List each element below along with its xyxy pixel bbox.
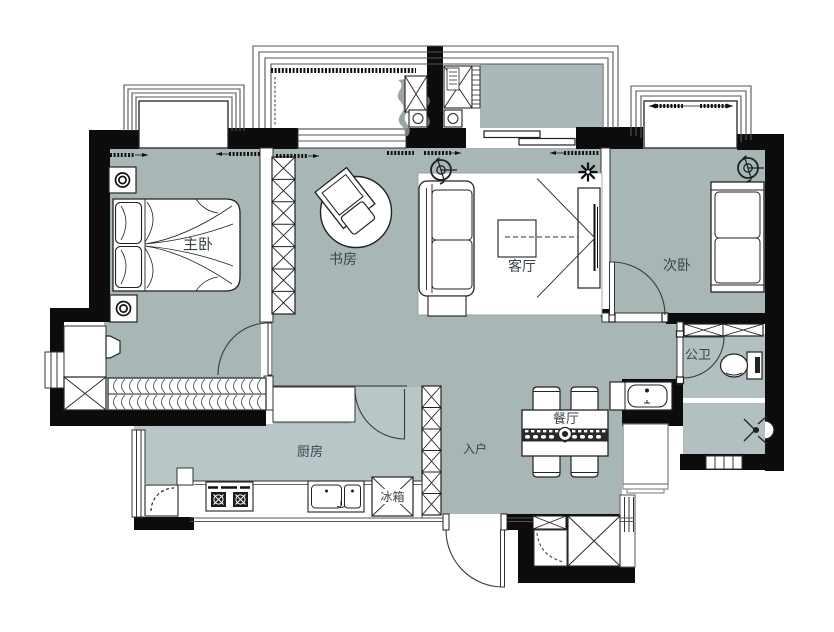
svg-text:书房: 书房 — [329, 251, 357, 267]
svg-text:公卫: 公卫 — [685, 347, 711, 362]
svg-text:入户: 入户 — [463, 441, 487, 456]
svg-text:厨房: 厨房 — [297, 444, 323, 459]
svg-text:冰箱: 冰箱 — [380, 489, 404, 504]
svg-text:主卧: 主卧 — [183, 236, 213, 253]
svg-text:餐厅: 餐厅 — [553, 411, 579, 426]
svg-text:客厅: 客厅 — [508, 258, 536, 274]
svg-text:次卧: 次卧 — [663, 257, 691, 273]
